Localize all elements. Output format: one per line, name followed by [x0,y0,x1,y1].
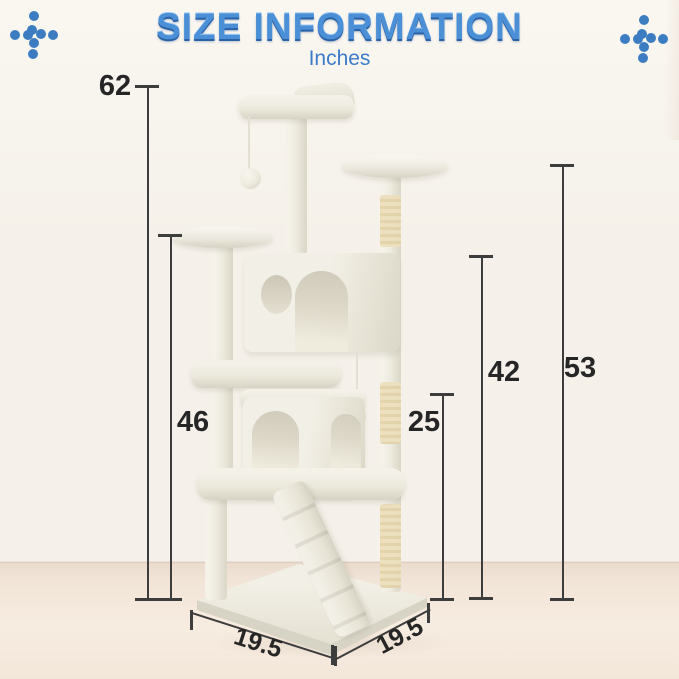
post-center-top [285,113,307,255]
post-left-middle [211,386,233,474]
round-platform-right [342,154,448,178]
sisal-wrap [380,382,401,444]
sisal-wrap [380,195,401,247]
tick [550,598,574,601]
dimension-value: 53 [561,352,599,385]
post-left-upper [212,245,233,366]
page-title: SIZE INFORMATION [0,6,679,48]
tick [430,598,454,601]
tick [135,85,159,88]
size-information-infographic: SIZE INFORMATION Inches [0,0,679,679]
tick [158,598,182,601]
dimension-value: 42 [485,356,523,389]
dot [646,33,656,43]
dots-cross-icon [618,12,674,68]
page-subtitle: Inches [0,47,679,71]
top-perch [239,95,354,119]
tick [469,597,493,600]
dots-cross-icon [8,8,64,64]
dot [29,38,39,48]
round-platform-left [172,226,273,248]
dot [29,11,39,21]
dot [658,34,668,44]
tick [469,255,493,258]
dimension-value: 62 [94,70,136,103]
tick [334,646,337,666]
post-left-lower [205,498,227,600]
dot [10,30,20,40]
dot [36,29,46,39]
sisal-wrap [380,504,401,588]
dot [638,53,648,63]
middle-shelf [191,360,341,388]
tick [135,598,159,601]
dimension-line [481,256,483,598]
tick [550,164,574,167]
toy-string [248,116,250,170]
dimension-value: 25 [407,406,441,439]
dot [639,15,649,25]
dimension-line [170,235,172,600]
hanging-ball-toy [240,168,261,189]
upper-condo [244,253,400,352]
tick [158,234,182,237]
tick [430,393,454,396]
dimension-line [442,394,444,600]
scratching-post-right [380,176,401,592]
dimension-line [147,86,149,600]
condo-arch-door [295,271,348,352]
dot [48,30,58,40]
condo-arch-side-door [331,414,361,472]
dot [620,34,630,44]
dot [28,49,38,59]
tick [190,610,193,630]
dot [639,42,649,52]
condo-peephole [261,275,292,314]
dimension-value: 46 [174,406,212,439]
